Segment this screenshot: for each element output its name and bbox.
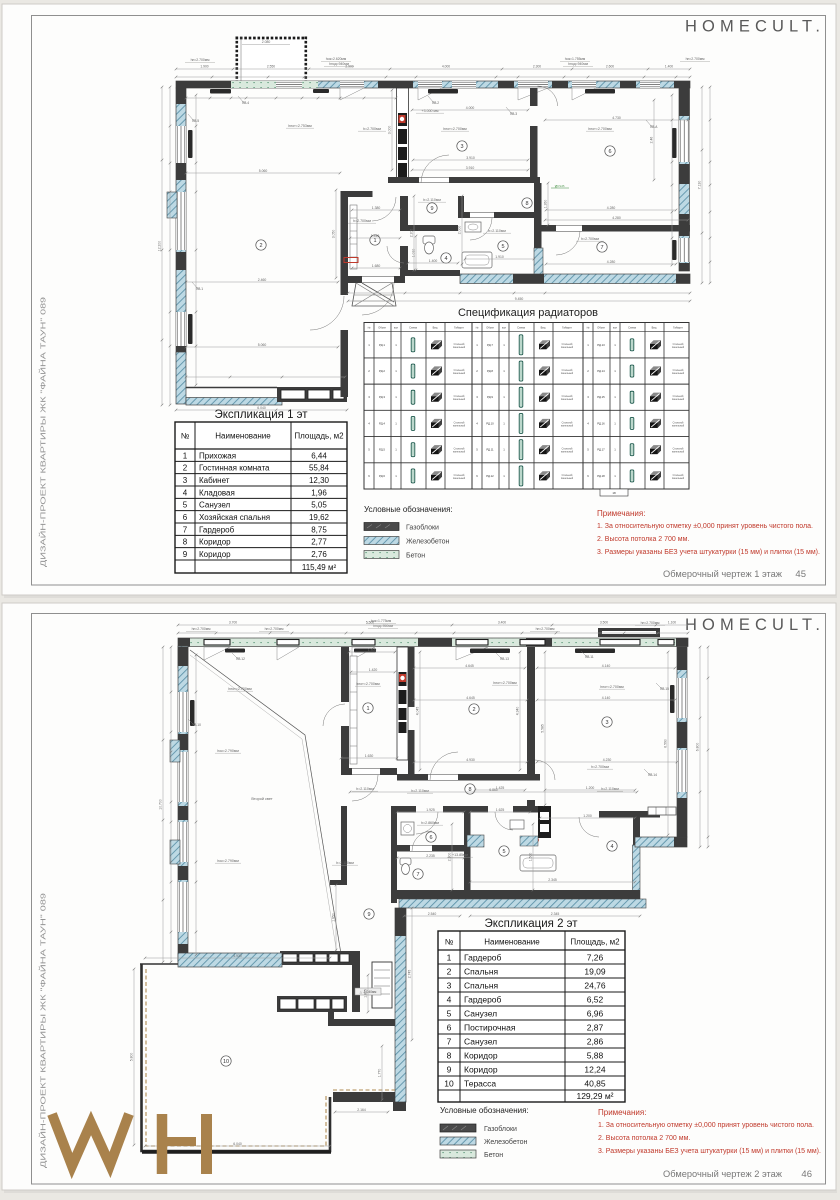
svg-text:панельный: панельный	[561, 424, 574, 427]
svg-text:ПВ.10: ПВ.10	[192, 723, 201, 727]
svg-text:РД.11: РД.11	[486, 448, 494, 452]
svg-text:1.100: 1.100	[668, 621, 676, 625]
svg-text:4.930: 4.930	[466, 758, 475, 762]
svg-text:Площадь, м2: Площадь, м2	[570, 938, 620, 947]
svg-text:hок=2.790мм: hок=2.790мм	[217, 749, 239, 753]
svg-text:Схема: Схема	[628, 325, 636, 329]
svg-text:1.200: 1.200	[583, 814, 592, 818]
svg-text:Габарит: Габарит	[562, 325, 572, 329]
svg-text:ДИЗАЙН-ПРОЕКТ КВАРТИРЫ ЖК "ФАЙ: ДИЗАЙН-ПРОЕКТ КВАРТИРЫ ЖК "ФАЙНА ТАУН" 0…	[39, 297, 48, 567]
svg-text:h=2.700мм: h=2.700мм	[363, 127, 382, 131]
svg-text:Санузел: Санузел	[199, 501, 230, 510]
svg-text:Экспликация 2 эт: Экспликация 2 эт	[484, 918, 578, 930]
svg-text:1.200: 1.200	[586, 786, 595, 790]
svg-text:7,26: 7,26	[587, 953, 604, 963]
svg-text:7: 7	[183, 525, 188, 534]
svg-text:1.400: 1.400	[368, 648, 377, 652]
svg-text:РД.17: РД.17	[597, 448, 605, 452]
svg-text:1: 1	[366, 706, 369, 712]
svg-text:1.260: 1.260	[544, 200, 548, 209]
svg-text:панельный: панельный	[672, 346, 685, 349]
svg-text:2.000: 2.000	[458, 226, 462, 235]
svg-text:1.900: 1.900	[200, 65, 208, 69]
svg-text:+3.000 мм: +3.000 мм	[421, 109, 439, 113]
svg-text:9: 9	[447, 1065, 452, 1075]
svg-text:ПВ.14: ПВ.14	[648, 773, 657, 777]
svg-text:Примечания:: Примечания:	[597, 509, 645, 518]
svg-text:h=2.110мм: h=2.110мм	[601, 787, 619, 791]
svg-text:6: 6	[608, 149, 611, 155]
svg-text:hок=2.620мм: hок=2.620мм	[326, 57, 347, 61]
svg-text:9.450: 9.450	[515, 297, 524, 301]
svg-text:8: 8	[183, 538, 188, 547]
svg-text:2: 2	[472, 707, 475, 713]
svg-text:Схема: Схема	[517, 325, 525, 329]
svg-text:hпот=2.700мм: hпот=2.700мм	[356, 682, 380, 686]
svg-text:2.540: 2.540	[428, 912, 437, 916]
svg-text:6,52: 6,52	[587, 995, 604, 1005]
svg-text:1.380: 1.380	[372, 206, 381, 210]
svg-text:hпот=2.700мм: hпот=2.700мм	[443, 127, 467, 131]
svg-text:4.045: 4.045	[416, 707, 420, 716]
svg-text:Железобетон: Железобетон	[484, 1138, 527, 1146]
svg-text:Обозн: Обозн	[486, 325, 494, 329]
svg-text:№: №	[445, 938, 454, 947]
svg-text:5: 5	[183, 501, 188, 510]
svg-text:Наименование: Наименование	[484, 938, 540, 947]
svg-text:55,84: 55,84	[309, 464, 330, 473]
svg-text:115,49 м²: 115,49 м²	[302, 563, 337, 572]
svg-text:ДИЗАЙН-ПРОЕКТ КВАРТИРЫ ЖК "ФАЙ: ДИЗАЙН-ПРОЕКТ КВАРТИРЫ ЖК "ФАЙНА ТАУН" 0…	[39, 893, 48, 1168]
svg-text:Коридор: Коридор	[199, 550, 231, 559]
svg-text:1,96: 1,96	[311, 488, 327, 497]
svg-text:2.164: 2.164	[357, 1108, 366, 1112]
svg-text:6: 6	[429, 835, 432, 841]
svg-text:9: 9	[183, 550, 188, 559]
svg-text:4: 4	[447, 995, 452, 1005]
svg-text:3: 3	[183, 476, 188, 485]
svg-text:4.730: 4.730	[612, 116, 621, 120]
svg-text:3.400: 3.400	[498, 621, 506, 625]
svg-text:1.440: 1.440	[371, 234, 380, 238]
svg-text:5.500: 5.500	[366, 621, 374, 625]
svg-text:РД.1: РД.1	[379, 343, 385, 347]
svg-text:№: №	[181, 432, 190, 441]
svg-text:5.585: 5.585	[541, 724, 545, 733]
svg-text:1.400: 1.400	[665, 65, 673, 69]
svg-text:2,76: 2,76	[311, 550, 327, 559]
svg-text:24,76: 24,76	[584, 981, 606, 991]
svg-text:ПВ.15: ПВ.15	[660, 687, 669, 691]
svg-text:панельный: панельный	[453, 372, 466, 375]
svg-text:hп=2.700мм: hп=2.700мм	[191, 58, 211, 62]
svg-text:h=2.110мм: h=2.110мм	[356, 787, 374, 791]
svg-text:РД.4: РД.4	[379, 421, 385, 425]
svg-text:панельный: панельный	[453, 346, 466, 349]
svg-text:10: 10	[444, 1079, 454, 1089]
svg-text:ПВ.1: ПВ.1	[196, 287, 203, 291]
svg-text:панельный: панельный	[453, 398, 466, 401]
svg-text:5.060: 5.060	[258, 343, 267, 347]
svg-text:Санузел: Санузел	[464, 1009, 497, 1019]
svg-text:7: 7	[416, 872, 419, 878]
svg-text:Терасса: Терасса	[464, 1079, 496, 1089]
svg-text:панельный: панельный	[561, 398, 574, 401]
svg-text:ПВ.А: ПВ.А	[650, 125, 658, 129]
svg-text:РД.8: РД.8	[487, 369, 493, 373]
svg-text:hпод=940мм: hпод=940мм	[568, 62, 588, 66]
svg-text:ПВ.5: ПВ.5	[192, 119, 199, 123]
svg-text:45: 45	[795, 569, 806, 580]
svg-text:РД.15: РД.15	[597, 395, 605, 399]
svg-text:2.46: 2.46	[650, 137, 654, 144]
svg-text:Гардероб: Гардероб	[199, 525, 235, 534]
svg-text:hок=2.790мм: hок=2.790мм	[217, 859, 239, 863]
svg-text:3: 3	[447, 981, 452, 991]
svg-text:6.590: 6.590	[664, 739, 668, 748]
svg-text:Габарит: Габарит	[454, 325, 464, 329]
svg-text:Площадь, м2: Площадь, м2	[294, 432, 344, 441]
svg-text:Экспликация 1 эт: Экспликация 1 эт	[214, 409, 308, 421]
svg-text:4.140: 4.140	[602, 664, 611, 668]
svg-text:кол: кол	[394, 326, 399, 329]
svg-text:Условные обозначения:: Условные обозначения:	[440, 1106, 529, 1115]
svg-text:РД.2: РД.2	[379, 369, 385, 373]
svg-text:h=2.110мм: h=2.110мм	[488, 229, 506, 233]
svg-text:2.900: 2.900	[345, 65, 353, 69]
svg-text:hпот=2.753мм: hпот=2.753мм	[288, 124, 312, 128]
svg-text:1.630: 1.630	[365, 754, 374, 758]
svg-text:9: 9	[367, 912, 370, 918]
svg-text:2.345: 2.345	[548, 878, 557, 882]
svg-text:ПВ.11: ПВ.11	[585, 655, 594, 659]
svg-text:5,05: 5,05	[311, 501, 327, 510]
svg-text:№: №	[476, 326, 479, 329]
svg-text:5.800: 5.800	[130, 1053, 134, 1062]
svg-text:7: 7	[600, 245, 603, 251]
svg-text:2.300: 2.300	[533, 65, 541, 69]
svg-text:Санузел: Санузел	[464, 1037, 497, 1047]
svg-text:2.745: 2.745	[408, 970, 412, 979]
svg-text:19,62: 19,62	[309, 513, 330, 522]
svg-text:4.230: 4.230	[603, 758, 612, 762]
svg-text:7: 7	[447, 1037, 452, 1047]
svg-text:6,44: 6,44	[311, 451, 327, 460]
svg-text:панельный: панельный	[561, 451, 574, 454]
svg-text:Коридор: Коридор	[464, 1065, 498, 1075]
svg-text:Хозяйская спальня: Хозяйская спальня	[199, 513, 270, 522]
svg-text:4.000: 4.000	[442, 65, 450, 69]
svg-text:ПВ.2: ПВ.2	[432, 101, 439, 105]
svg-text:1.425: 1.425	[496, 786, 505, 790]
svg-text:10.700: 10.700	[159, 799, 163, 809]
svg-text:hок=1.755мм: hок=1.755мм	[565, 57, 586, 61]
svg-text:2.460: 2.460	[258, 278, 267, 282]
svg-text:1. За относительную отметку ±0: 1. За относительную отметку ±0,000 приня…	[597, 523, 813, 530]
svg-text:панельный: панельный	[672, 477, 685, 480]
svg-text:hпот=2.700мм: hпот=2.700мм	[588, 127, 612, 131]
svg-text:5: 5	[501, 244, 504, 250]
svg-text:Кабинет: Кабинет	[199, 476, 230, 485]
svg-text:РД.5: РД.5	[379, 448, 385, 452]
svg-text:3: 3	[460, 144, 463, 150]
svg-text:4: 4	[183, 488, 188, 497]
svg-text:Примечания:: Примечания:	[598, 1108, 646, 1117]
svg-text:4: 4	[610, 844, 613, 850]
svg-text:кол: кол	[613, 326, 618, 329]
svg-text:2: 2	[259, 243, 262, 249]
svg-text:3. Размеры указаны БЕЗ учета ш: 3. Размеры указаны БЕЗ учета штукатурки …	[598, 1148, 821, 1155]
svg-text:1.500: 1.500	[529, 853, 533, 862]
svg-text:Коридор: Коридор	[464, 1051, 498, 1061]
svg-text:h=2.110мм: h=2.110мм	[336, 861, 354, 865]
svg-text:панельный: панельный	[561, 372, 574, 375]
svg-text:Прихожая: Прихожая	[199, 451, 236, 460]
svg-text:5: 5	[502, 849, 505, 855]
svg-text:№: №	[587, 326, 590, 329]
svg-text:129,29 м²: 129,29 м²	[576, 1091, 613, 1101]
svg-text:2,77: 2,77	[311, 538, 327, 547]
svg-text:2,87: 2,87	[587, 1023, 604, 1033]
svg-text:1.925: 1.925	[426, 808, 435, 812]
svg-text:панельный: панельный	[561, 346, 574, 349]
svg-text:1.010: 1.010	[412, 249, 416, 258]
svg-text:3.500: 3.500	[600, 621, 608, 625]
svg-text:1.650: 1.650	[332, 913, 336, 922]
svg-text:панельный: панельный	[672, 451, 685, 454]
svg-text:Схема: Схема	[409, 325, 417, 329]
svg-text:Коридор: Коридор	[199, 538, 231, 547]
svg-text:h=2.700мм: h=2.700мм	[581, 237, 600, 241]
svg-text:1.805: 1.805	[364, 989, 368, 998]
svg-text:Условные обозначения:: Условные обозначения:	[364, 505, 453, 514]
svg-text:h=2.700мм: h=2.700мм	[353, 219, 372, 223]
svg-text:Спецификация радиаторов: Спецификация радиаторов	[458, 307, 598, 319]
svg-text:Кладовая: Кладовая	[199, 488, 235, 497]
svg-text:2: 2	[447, 967, 452, 977]
svg-text:4.280: 4.280	[607, 206, 616, 210]
svg-text:1.910: 1.910	[495, 255, 504, 259]
svg-text:12,24: 12,24	[584, 1065, 606, 1075]
svg-text:РД.7: РД.7	[487, 343, 493, 347]
svg-text:Бетон: Бетон	[484, 1152, 503, 1159]
svg-text:4.280: 4.280	[612, 216, 621, 220]
svg-text:РД.16: РД.16	[597, 421, 605, 425]
svg-text:2.550: 2.550	[267, 65, 275, 69]
svg-text:10: 10	[223, 1059, 229, 1065]
svg-text:h=2.700мм: h=2.700мм	[591, 765, 610, 769]
svg-text:12.200: 12.200	[158, 241, 162, 251]
svg-text:Вид: Вид	[541, 325, 546, 329]
svg-text:3. Размеры указаны БЕЗ учета ш: 3. Размеры указаны БЕЗ учета штукатурки …	[597, 549, 820, 556]
svg-text:панельный: панельный	[561, 477, 574, 480]
svg-text:46: 46	[801, 1169, 812, 1180]
svg-text:2: 2	[183, 464, 188, 473]
svg-text:Спальня: Спальня	[464, 981, 499, 991]
svg-text:hп=2.700мм: hп=2.700мм	[641, 621, 661, 625]
svg-text:1.400: 1.400	[429, 259, 438, 263]
svg-text:4: 4	[444, 256, 447, 262]
svg-text:3.050: 3.050	[332, 230, 336, 239]
svg-text:панельный: панельный	[453, 477, 466, 480]
svg-text:Гардероб: Гардероб	[464, 953, 502, 963]
svg-text:ПВ.4: ПВ.4	[242, 101, 249, 105]
svg-text:1.420: 1.420	[369, 668, 378, 672]
svg-text:2.600: 2.600	[606, 65, 614, 69]
svg-text:Постирочная: Постирочная	[464, 1023, 516, 1033]
svg-text:Спальня: Спальня	[464, 967, 499, 977]
svg-text:4.645: 4.645	[465, 664, 474, 668]
svg-text:8: 8	[447, 1051, 452, 1061]
svg-text:Габарит: Габарит	[673, 325, 683, 329]
svg-text:Вид: Вид	[433, 325, 438, 329]
svg-text:2. Высота потолка 2 700 мм.: 2. Высота потолка 2 700 мм.	[598, 1135, 690, 1142]
svg-text:2. Высота потолка 2 700 мм.: 2. Высота потолка 2 700 мм.	[597, 536, 689, 543]
svg-text:2.345: 2.345	[551, 912, 560, 916]
svg-text:6: 6	[447, 1023, 452, 1033]
svg-text:hпот=2.700мм: hпот=2.700мм	[493, 681, 517, 685]
svg-text:h=2.110мм: h=2.110мм	[411, 789, 429, 793]
svg-text:панельный: панельный	[672, 372, 685, 375]
svg-text:Газоблоки: Газоблоки	[484, 1125, 517, 1133]
svg-text:РД.10: РД.10	[486, 421, 494, 425]
svg-text:Обмерочный чертеж 2 этаж: Обмерочный чертеж 2 этаж	[663, 1169, 783, 1180]
svg-text:6: 6	[183, 513, 188, 522]
svg-text:5: 5	[447, 1009, 452, 1019]
svg-text:8,75: 8,75	[311, 525, 327, 534]
svg-text:hпот=2.700мм: hпот=2.700мм	[228, 687, 252, 691]
svg-text:hп=2.700мм: hп=2.700мм	[686, 57, 706, 61]
svg-text:1: 1	[183, 451, 188, 460]
svg-text:h=2.110мм: h=2.110мм	[423, 198, 441, 202]
svg-text:3.700: 3.700	[229, 621, 237, 625]
svg-text:4.140: 4.140	[602, 696, 611, 700]
svg-text:1.625: 1.625	[496, 808, 505, 812]
svg-text:панельный: панельный	[672, 398, 685, 401]
svg-text:Газоблоки: Газоблоки	[406, 524, 439, 532]
svg-text:5,88: 5,88	[587, 1051, 604, 1061]
svg-text:3.910: 3.910	[466, 156, 475, 160]
svg-text:4.000: 4.000	[466, 106, 475, 110]
svg-text:18: 18	[612, 491, 616, 495]
svg-text:Второй свет: Второй свет	[251, 797, 272, 801]
svg-text:7.130: 7.130	[698, 181, 702, 190]
svg-text:hп=2.700мм: hп=2.700мм	[265, 627, 285, 631]
svg-text:ПВ.3: ПВ.3	[510, 112, 517, 116]
svg-text:РД.18: РД.18	[597, 474, 605, 478]
svg-text:2.235: 2.235	[426, 854, 435, 858]
svg-text:3.000: 3.000	[388, 126, 392, 135]
svg-text:2.080: 2.080	[262, 40, 271, 44]
svg-text:1: 1	[373, 238, 376, 244]
svg-text:панельный: панельный	[672, 424, 685, 427]
svg-text:2.205: 2.205	[410, 229, 414, 238]
svg-text:РД.14: РД.14	[597, 369, 605, 373]
svg-text:Обмерочный чертеж 1 этаж: Обмерочный чертеж 1 этаж	[663, 569, 783, 580]
svg-text:3.910: 3.910	[466, 166, 475, 170]
svg-text:+13.85мм: +13.85мм	[452, 853, 469, 857]
svg-text:Гостинная комната: Гостинная комната	[199, 464, 270, 473]
svg-text:РД.12: РД.12	[486, 474, 494, 478]
svg-text:h=2.860мм: h=2.860мм	[421, 821, 440, 825]
svg-text:5.060: 5.060	[259, 169, 268, 173]
svg-text:ПВ.12: ПВ.12	[236, 657, 245, 661]
svg-text:4.340: 4.340	[516, 707, 520, 716]
svg-text:РД.9: РД.9	[487, 395, 493, 399]
svg-text:Гардероб: Гардероб	[464, 995, 502, 1005]
svg-text:РД.3: РД.3	[379, 395, 385, 399]
svg-text:Вид: Вид	[652, 325, 657, 329]
svg-text:hпод=950мм: hпод=950мм	[373, 624, 393, 628]
svg-text:РД.6: РД.6	[379, 474, 385, 478]
svg-text:4.930: 4.930	[233, 954, 242, 958]
svg-text:панельный: панельный	[453, 424, 466, 427]
svg-text:8: 8	[525, 201, 528, 207]
svg-text:9: 9	[430, 206, 433, 212]
svg-text:hпот=2.700мм: hпот=2.700мм	[600, 685, 624, 689]
svg-text:1. За относительную отметку ±0: 1. За относительную отметку ±0,000 приня…	[598, 1122, 814, 1129]
svg-text:ПВ.13: ПВ.13	[500, 657, 509, 661]
svg-text:1.770: 1.770	[378, 1069, 382, 1078]
svg-text:РД.13: РД.13	[597, 343, 605, 347]
svg-text:панельный: панельный	[453, 451, 466, 454]
svg-text:Наименование: Наименование	[215, 432, 271, 441]
svg-text:1: 1	[447, 953, 452, 963]
svg-text:Обозн: Обозн	[597, 325, 605, 329]
svg-text:ур.ч.п.: ур.ч.п.	[555, 184, 566, 188]
svg-text:Обозн: Обозн	[378, 325, 386, 329]
svg-text:40,85: 40,85	[584, 1079, 606, 1089]
svg-text:кол: кол	[502, 326, 507, 329]
svg-text:6.040: 6.040	[233, 1142, 242, 1146]
svg-text:12,30: 12,30	[309, 476, 330, 485]
svg-text:6,96: 6,96	[587, 1009, 604, 1019]
svg-text:Железобетон: Железобетон	[406, 538, 449, 546]
svg-text:Бетон: Бетон	[406, 553, 425, 560]
svg-text:hп=2.700мм: hп=2.700мм	[536, 627, 556, 631]
svg-text:4.645: 4.645	[466, 696, 475, 700]
svg-text:6.800: 6.800	[696, 743, 700, 752]
svg-text:19,09: 19,09	[584, 967, 606, 977]
svg-text:hп=2.700мм: hп=2.700мм	[192, 627, 212, 631]
svg-text:2,86: 2,86	[587, 1037, 604, 1047]
svg-text:4.280: 4.280	[607, 260, 616, 264]
svg-text:1.680: 1.680	[372, 264, 381, 268]
svg-text:3: 3	[605, 720, 608, 726]
svg-text:№: №	[368, 326, 371, 329]
svg-text:2.300: 2.300	[448, 853, 452, 862]
